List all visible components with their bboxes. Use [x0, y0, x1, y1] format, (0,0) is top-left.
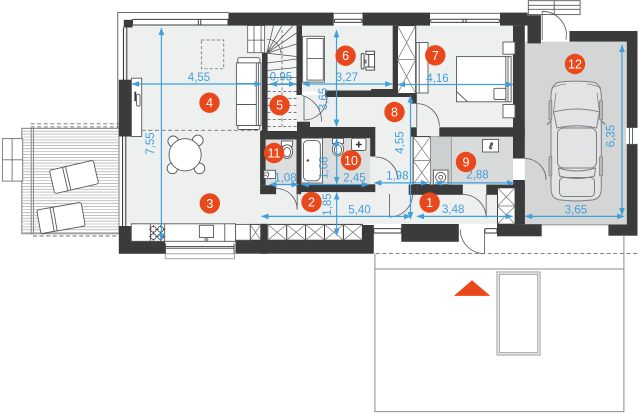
svg-text:6: 6	[342, 49, 349, 63]
svg-text:3: 3	[206, 197, 213, 211]
svg-text:1,68: 1,68	[319, 157, 331, 179]
svg-text:ℓ: ℓ	[488, 141, 492, 151]
svg-text:1,98: 1,98	[386, 171, 408, 183]
svg-text:5,40: 5,40	[348, 205, 370, 217]
svg-text:6,35: 6,35	[606, 125, 618, 147]
svg-text:12: 12	[568, 58, 582, 72]
svg-text:11: 11	[268, 147, 281, 161]
svg-text:1,08: 1,08	[274, 173, 296, 185]
svg-text:10: 10	[344, 154, 358, 168]
svg-text:4: 4	[206, 96, 213, 110]
svg-text:3,48: 3,48	[442, 204, 464, 216]
svg-text:3,65: 3,65	[565, 205, 587, 217]
svg-text:7,55: 7,55	[145, 132, 157, 154]
svg-text:4,16: 4,16	[426, 73, 448, 85]
svg-text:3,27: 3,27	[336, 72, 358, 84]
svg-text:1,85: 1,85	[322, 193, 334, 215]
svg-text:9: 9	[463, 156, 470, 170]
svg-text:2,45: 2,45	[343, 173, 365, 185]
svg-text:2: 2	[308, 196, 315, 210]
svg-text:7: 7	[432, 49, 439, 63]
svg-text:0,95: 0,95	[270, 72, 292, 84]
svg-text:3,65: 3,65	[318, 88, 330, 110]
svg-text:5: 5	[276, 99, 283, 113]
svg-text:1: 1	[426, 196, 433, 210]
svg-text:4,55: 4,55	[395, 131, 407, 153]
svg-text:8: 8	[391, 106, 398, 120]
svg-text:4,55: 4,55	[188, 72, 210, 84]
